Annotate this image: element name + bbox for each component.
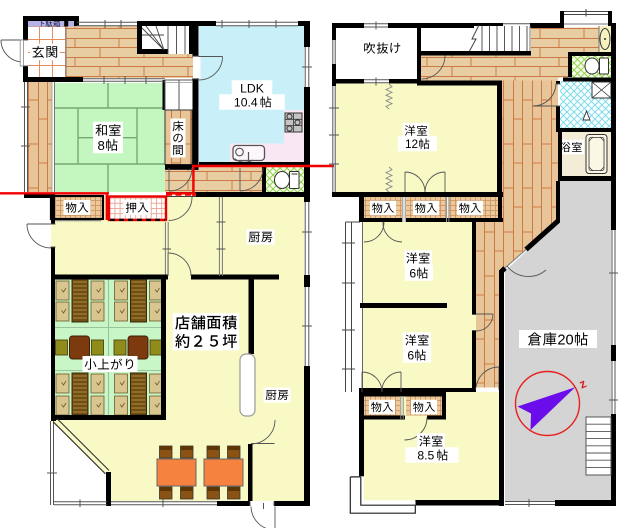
svg-text:6: 6 [407, 348, 414, 362]
svg-text:8.5: 8.5 [417, 448, 434, 462]
svg-text:12: 12 [405, 137, 418, 151]
svg-text:6: 6 [409, 266, 416, 280]
svg-text:8: 8 [98, 138, 105, 153]
svg-text:LDK: LDK [240, 81, 264, 95]
svg-text:10.4: 10.4 [234, 95, 258, 109]
svg-text:20: 20 [557, 332, 573, 348]
